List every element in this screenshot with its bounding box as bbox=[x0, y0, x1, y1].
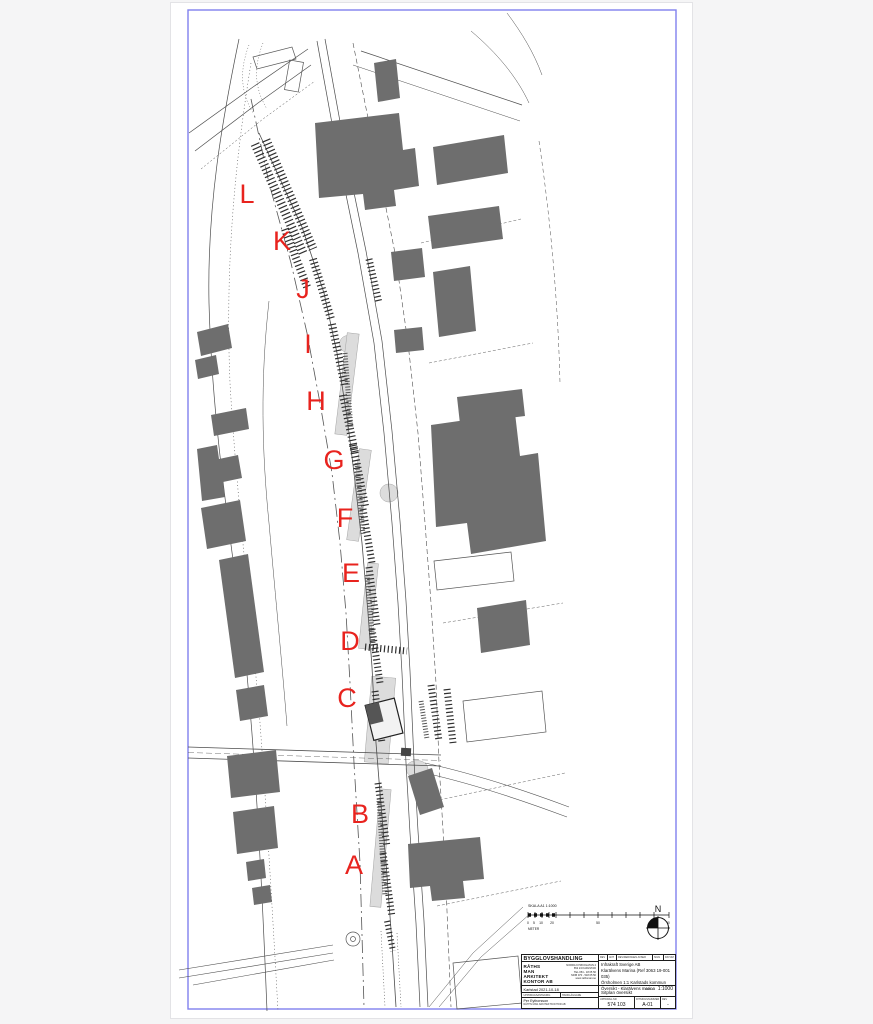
scale-unit-label: METER bbox=[528, 927, 540, 931]
section-marker-j: J bbox=[296, 274, 310, 304]
map-content: A B C D E F G H I J K L bbox=[179, 13, 569, 1011]
drawing-title: Sitplan översikt bbox=[599, 990, 643, 996]
scale-tick-50: 50 bbox=[596, 921, 600, 925]
sign-col-header: SIGN bbox=[653, 955, 664, 960]
project-number: 574 103 bbox=[599, 1001, 634, 1008]
firm-block: RÅTHS MAN ARKITEKT KONTOR AB NORRA KYRKO… bbox=[522, 962, 598, 986]
firm-name: RÅTHS MAN ARKITEKT KONTOR AB bbox=[522, 962, 557, 985]
scale-label: SKALA bbox=[645, 988, 653, 991]
revidering-col-header: REVIDERINGEN AVSER bbox=[617, 955, 653, 960]
title-block-right: REV ANT REVIDERINGEN AVSER SIGN DATUM In… bbox=[599, 955, 675, 1008]
scale-bar-title: SKALA A1 1:1000 bbox=[528, 904, 557, 908]
section-marker-i: I bbox=[304, 329, 312, 359]
datum-col-header: DATUM bbox=[664, 955, 675, 960]
buildings-east bbox=[315, 59, 546, 901]
buildings-west bbox=[195, 324, 280, 905]
section-marker-f: F bbox=[337, 503, 354, 533]
document-type: BYGGLOVSHANDLING bbox=[522, 955, 598, 962]
screenshot-canvas: A B C D E F G H I J K L SKALA A1 1:1000 bbox=[0, 0, 873, 1024]
site-plan-drawing: A B C D E F G H I J K L SKALA A1 1:1000 bbox=[171, 3, 694, 1020]
project-number-cell: UPPDRAG.NR 574 103 bbox=[599, 997, 635, 1008]
role-header: UPPDRAGSANSVARIG bbox=[522, 993, 560, 997]
firm-contact: NORRA KYRKOGATAN 4 652 24 KARLSTAD TEL 0… bbox=[557, 962, 599, 985]
number-row: UPPDRAG.NR 574 103 RITNINGSNUMMER A-01 R… bbox=[599, 997, 675, 1008]
section-marker-a: A bbox=[345, 850, 363, 880]
place-date: Karlstad 2021-10-18 bbox=[522, 986, 598, 993]
section-marker-h: H bbox=[306, 386, 326, 416]
scale-tick-20: 20 bbox=[550, 921, 554, 925]
drawing-sheet: A B C D E F G H I J K L SKALA A1 1:1000 bbox=[170, 2, 693, 1019]
revision-cell: REV - bbox=[661, 997, 675, 1008]
scale-tick-0: 0 bbox=[527, 921, 529, 925]
drawing-number: A-01 bbox=[635, 1001, 660, 1008]
scale-tick-10: 10 bbox=[539, 921, 543, 925]
drawing-title-row: Sitplan översikt SKALA 1:1000 bbox=[599, 986, 675, 997]
section-marker-l: L bbox=[239, 179, 254, 209]
responsible-names: Per Eythorsson RÅTHS MAN ARKITEKTKONTOR … bbox=[522, 998, 598, 1008]
section-marker-e: E bbox=[342, 558, 360, 588]
firm-name-line: KONTOR AB bbox=[524, 979, 557, 984]
scale-value: 1:1000 bbox=[658, 986, 673, 992]
drawing-number-cell: RITNINGSNUMMER A-01 bbox=[635, 997, 661, 1008]
section-marker-d: D bbox=[340, 626, 360, 656]
north-label: N bbox=[655, 904, 662, 914]
rev-col-header: REV bbox=[599, 955, 608, 960]
section-marker-b: B bbox=[351, 799, 369, 829]
firm-contact-line: www.rathsman.se bbox=[557, 977, 597, 980]
north-arrow: N bbox=[646, 904, 670, 940]
section-marker-k: K bbox=[273, 226, 291, 256]
section-marker-g: G bbox=[323, 445, 344, 475]
ant-col-header: ANT bbox=[608, 955, 617, 960]
role-header: HANDLÄGGARE bbox=[560, 993, 599, 997]
scale-tick-5: 5 bbox=[533, 921, 535, 925]
title-block-left: BYGGLOVSHANDLING RÅTHS MAN ARKITEKT KONT… bbox=[522, 955, 599, 1008]
bridge-structure bbox=[401, 748, 411, 757]
scale-cell: SKALA 1:1000 bbox=[643, 977, 675, 996]
responsible-firm: RÅTHS MAN ARKITEKTKONTOR AB bbox=[524, 1003, 599, 1007]
section-marker-c: C bbox=[337, 683, 357, 713]
title-block: BYGGLOVSHANDLING RÅTHS MAN ARKITEKT KONT… bbox=[521, 954, 676, 1009]
revision-value: - bbox=[661, 1001, 675, 1008]
